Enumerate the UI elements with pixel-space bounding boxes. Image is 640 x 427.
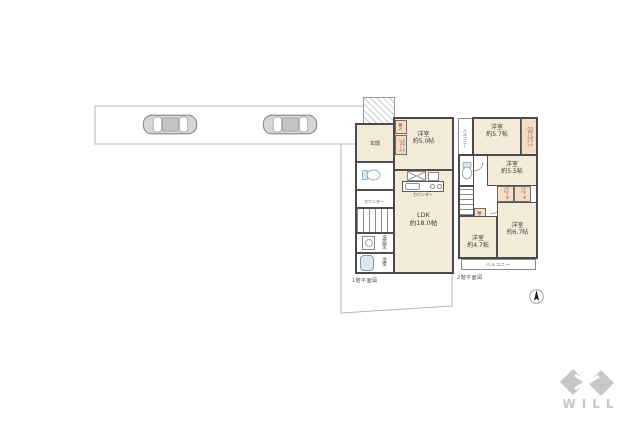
room-b-label: 洋室 約5.5帖 xyxy=(487,161,537,175)
room-size: 約5.7帖 xyxy=(473,131,521,138)
floor-plan-page: 物入 シューズ クローク 洋室 約5.0帖 玄関 カウンター カウンター 洗面室… xyxy=(0,0,640,427)
room-size: 約6.7帖 xyxy=(497,229,538,236)
washroom-label: 洗面室 xyxy=(381,235,386,249)
will-logo-text: WILL xyxy=(556,397,626,411)
hall-counter-label: カウンター xyxy=(356,200,392,205)
balcony-bottom: バルコニー xyxy=(461,259,536,270)
entrance-porch xyxy=(363,97,395,125)
room-ldk-label: LDK 約18.0帖 xyxy=(394,212,453,228)
closet-1: クローゼット xyxy=(497,186,514,202)
kitchen-counter-label: カウンター xyxy=(402,193,444,198)
stairs-1f xyxy=(356,208,394,233)
bathroom-label: 浴室 xyxy=(381,257,386,266)
north-arrow-icon xyxy=(528,288,545,305)
kitchen-sink-icon xyxy=(405,183,420,190)
bathtub-icon xyxy=(360,255,374,271)
stairs-2f xyxy=(459,186,474,216)
wic-label-line2: クローゼット xyxy=(529,127,532,146)
room-west-label: 洋室 約5.0帖 xyxy=(394,131,453,145)
room-size: 約4.7帖 xyxy=(459,242,497,249)
room-c-label: 洋室 約4.7帖 xyxy=(459,235,497,249)
closet-1-label: クローゼット xyxy=(503,187,509,201)
stove-burner-icon xyxy=(437,184,442,189)
car-icon xyxy=(262,112,318,137)
entrance-label: 玄関 xyxy=(356,141,394,147)
balcony-bottom-label: バルコニー xyxy=(486,262,511,268)
cupboard xyxy=(428,172,439,181)
balcony-side: バルコニー xyxy=(458,118,473,158)
toilet-icon xyxy=(362,168,381,182)
room-d-label: 洋室 約6.7帖 xyxy=(497,222,538,236)
room-size: 約5.5帖 xyxy=(487,168,537,175)
room-size: 約18.0帖 xyxy=(394,220,453,228)
room-size: 約5.0帖 xyxy=(394,138,453,145)
site-boundary-lines xyxy=(0,0,640,427)
stove-burner-icon xyxy=(430,184,435,189)
refrigerator-space xyxy=(407,171,426,181)
balcony-side-label: バルコニー xyxy=(464,129,468,148)
will-logo: WILL xyxy=(556,369,626,411)
car-icon xyxy=(142,112,198,137)
closet-2: クローゼット xyxy=(514,186,531,202)
floor1-caption: 1階平面図 xyxy=(352,277,378,284)
room-a-label: 洋室 約5.7帖 xyxy=(473,124,521,138)
will-logo-mark xyxy=(556,369,626,397)
toilet-icon xyxy=(461,162,473,180)
storage-closet-label: 物入 xyxy=(399,123,403,131)
floor2-caption: 2階平面図 xyxy=(457,274,483,281)
closet-2-label: クローゼット xyxy=(520,187,526,201)
walk-in-closet: ウォークイン クローゼット xyxy=(521,118,537,155)
washing-machine-icon xyxy=(362,236,375,250)
